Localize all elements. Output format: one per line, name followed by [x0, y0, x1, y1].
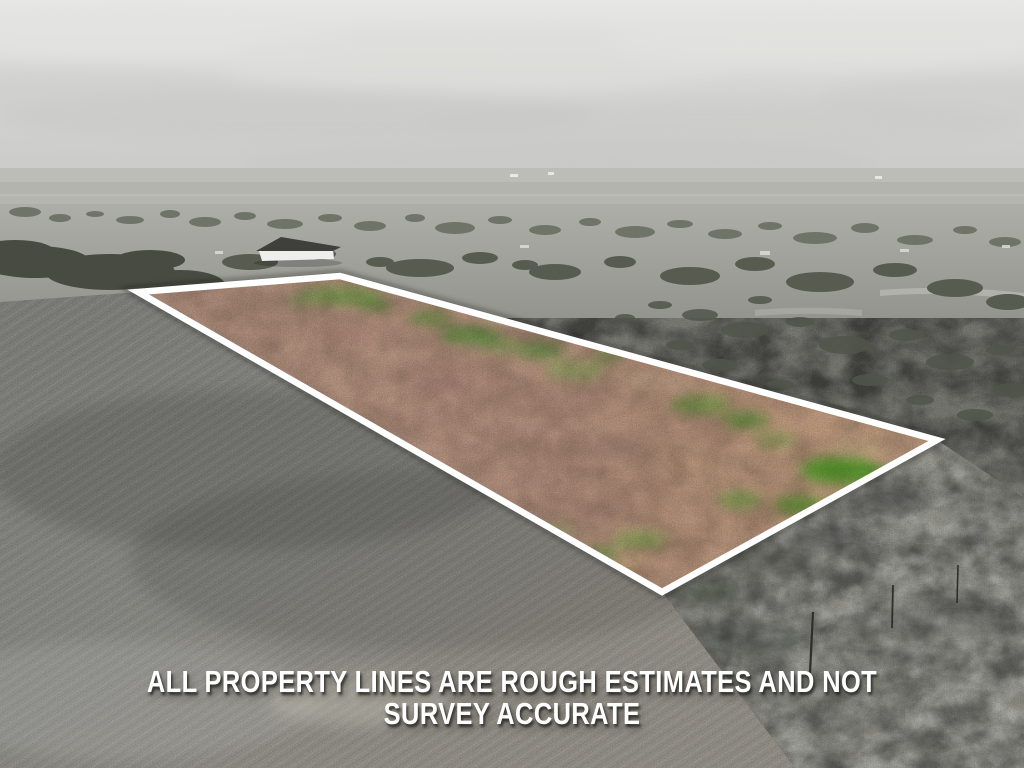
- disclaimer-line-1: ALL PROPERTY LINES ARE ROUGH ESTIMATES A…: [92, 666, 932, 698]
- disclaimer-line-2: SURVEY ACCURATE: [92, 698, 932, 730]
- scene-graphic: [0, 0, 1024, 768]
- aerial-photo: ALL PROPERTY LINES ARE ROUGH ESTIMATES A…: [0, 0, 1024, 768]
- disclaimer-text: ALL PROPERTY LINES ARE ROUGH ESTIMATES A…: [0, 666, 1024, 730]
